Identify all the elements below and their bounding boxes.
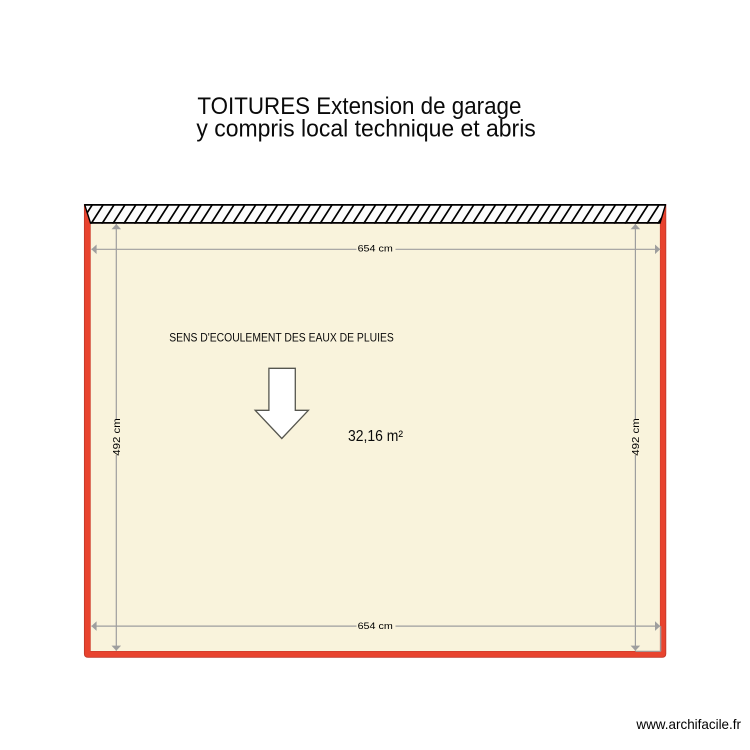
svg-text:www.archifacile.fr: www.archifacile.fr (635, 716, 741, 732)
svg-text:492 cm: 492 cm (112, 418, 123, 456)
svg-text:32,16 m²: 32,16 m² (348, 428, 403, 445)
svg-text:492 cm: 492 cm (631, 418, 642, 456)
svg-text:654 cm: 654 cm (358, 244, 393, 255)
svg-text:SENS D'ECOULEMENT DES EAUX DE: SENS D'ECOULEMENT DES EAUX DE PLUIES (169, 331, 394, 345)
svg-text:654 cm: 654 cm (358, 621, 393, 632)
svg-text:y compris local technique et a: y compris local technique et abris (196, 116, 535, 143)
